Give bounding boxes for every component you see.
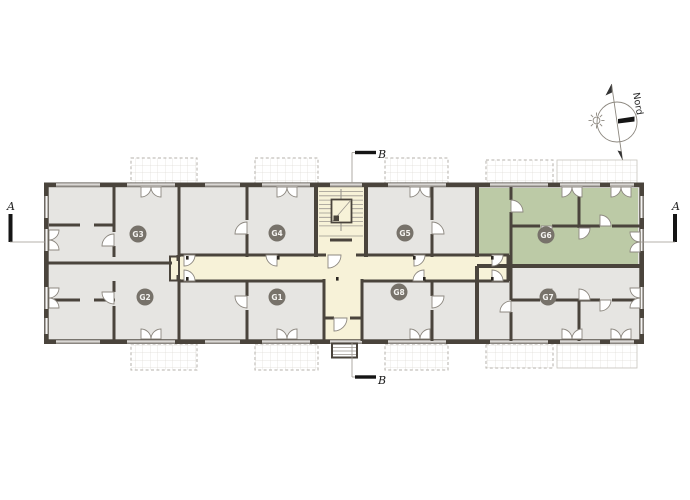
unit-badge-g1[interactable]: G1 — [269, 289, 286, 306]
section-bar — [355, 375, 376, 378]
door-stop — [491, 277, 494, 281]
north-needle — [618, 117, 635, 124]
balcony — [385, 158, 448, 184]
section-marker-a-left: A — [6, 200, 45, 242]
door-stop — [186, 256, 189, 260]
door-stop — [491, 256, 494, 260]
door-stop — [336, 277, 339, 281]
unit-badge-label: G8 — [393, 288, 404, 297]
sun-icon — [593, 117, 600, 124]
balcony — [255, 344, 318, 370]
unit-badge-g8[interactable]: G8 — [391, 284, 408, 301]
unit-badge-g7[interactable]: G7 — [540, 289, 557, 306]
balcony — [131, 344, 197, 370]
compass-arrowhead — [606, 84, 613, 96]
door-stop — [413, 256, 416, 260]
unit-badge-label: G1 — [271, 293, 282, 302]
floor-plan-svg: A A B B Nord G3G4G5G6G2G1G8G7 — [0, 0, 690, 500]
section-marker-a-right: A — [640, 200, 680, 242]
unit-badge-g4[interactable]: G4 — [269, 225, 286, 242]
unit-badge-label: G5 — [399, 229, 410, 238]
unit-badge-label: G6 — [540, 231, 551, 240]
section-label: A — [671, 200, 680, 213]
section-label: A — [6, 200, 15, 213]
section-bar — [9, 214, 13, 242]
door-stop — [186, 277, 189, 281]
section-bar — [673, 214, 677, 242]
entrance-canopy — [332, 344, 357, 358]
balcony — [385, 344, 448, 370]
balcony — [486, 160, 553, 184]
unit-badge-label: G7 — [542, 293, 553, 302]
unit-badge-g5[interactable]: G5 — [397, 225, 414, 242]
unit-badge-g2[interactable]: G2 — [137, 289, 154, 306]
sun-rays — [589, 113, 605, 129]
unit-badge-label: G4 — [271, 229, 282, 238]
unit-badge-g3[interactable]: G3 — [130, 226, 147, 243]
north-label: Nord — [630, 92, 645, 116]
balcony — [557, 344, 637, 368]
unit-badge-label: G2 — [139, 293, 150, 302]
unit-badge-label: G3 — [132, 230, 143, 239]
balcony — [557, 160, 637, 184]
section-bar — [355, 151, 376, 154]
floor-plan: A A B B Nord G3G4G5G6G2G1G8G7 — [0, 0, 690, 500]
unit-badge-g6[interactable]: G6 — [538, 227, 555, 244]
door-stop — [423, 277, 426, 281]
section-label: B — [377, 374, 386, 387]
balcony — [255, 158, 318, 184]
section-marker-b-top: B — [352, 148, 386, 183]
north-compass: Nord — [589, 84, 645, 160]
balcony — [486, 344, 553, 368]
section-label: B — [377, 148, 386, 161]
balcony — [131, 158, 197, 184]
door-stop — [277, 256, 280, 260]
